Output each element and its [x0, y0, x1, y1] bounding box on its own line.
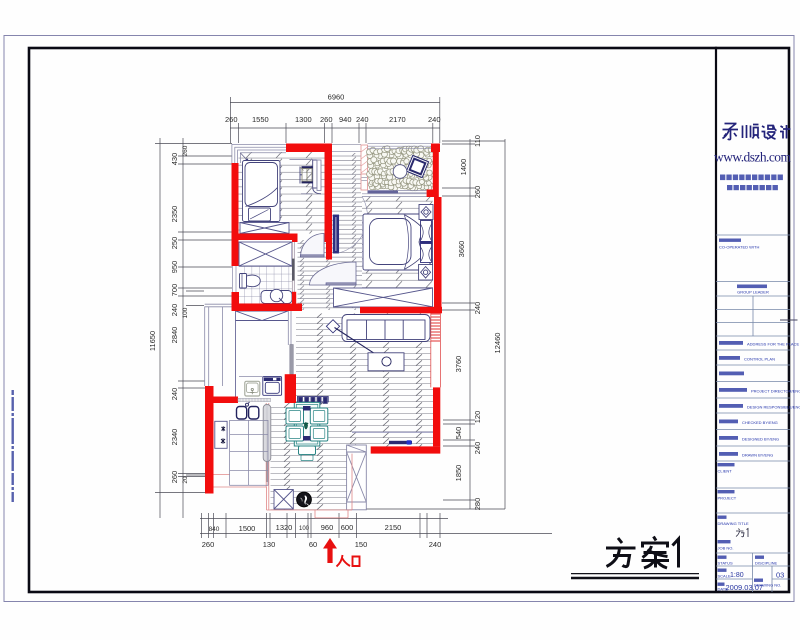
svg-text:100: 100 — [182, 307, 189, 318]
svg-text:ADDRESS FOR THE PLACE: ADDRESS FOR THE PLACE — [747, 342, 799, 347]
svg-text:SCALE: SCALE — [718, 574, 731, 579]
svg-text:240: 240 — [473, 302, 482, 315]
svg-text:240: 240 — [428, 115, 441, 124]
svg-text:DESIGNED BY/ENG: DESIGNED BY/ENG — [742, 437, 779, 442]
svg-text:3760: 3760 — [454, 356, 463, 373]
svg-text:250: 250 — [170, 237, 179, 250]
svg-text:150: 150 — [355, 540, 368, 549]
svg-text:840: 840 — [209, 526, 220, 533]
svg-text:130: 130 — [263, 540, 276, 549]
svg-text:2340: 2340 — [170, 429, 179, 446]
svg-text:540: 540 — [454, 427, 463, 440]
svg-text:CONTROL PLAN: CONTROL PLAN — [744, 357, 775, 362]
svg-text:940: 940 — [339, 115, 352, 124]
svg-text:110: 110 — [473, 135, 482, 147]
svg-text:280: 280 — [473, 498, 482, 511]
svg-text:2350: 2350 — [170, 206, 179, 223]
svg-text:240: 240 — [170, 388, 179, 401]
svg-text:20: 20 — [182, 476, 189, 484]
svg-text:240: 240 — [429, 540, 442, 549]
svg-text:3660: 3660 — [457, 241, 466, 258]
svg-text:DRAWING TITLE: DRAWING TITLE — [718, 521, 749, 526]
svg-text:CO-OPERATED WITH: CO-OPERATED WITH — [719, 245, 759, 250]
svg-text:DISCIPLINE: DISCIPLINE — [755, 561, 778, 566]
svg-text:2840: 2840 — [170, 327, 179, 344]
svg-text:PROJECT: PROJECT — [718, 496, 737, 501]
svg-text:2170: 2170 — [389, 115, 406, 124]
svg-text:260: 260 — [182, 145, 189, 156]
svg-text:1400: 1400 — [459, 159, 468, 176]
svg-text:11650: 11650 — [148, 331, 157, 351]
svg-text:1500: 1500 — [239, 524, 256, 533]
svg-text:100: 100 — [299, 526, 310, 532]
svg-text:2150: 2150 — [385, 523, 402, 532]
svg-text:260: 260 — [320, 115, 333, 124]
svg-text:240: 240 — [473, 442, 482, 455]
svg-text:1320: 1320 — [276, 523, 293, 532]
svg-text:260: 260 — [225, 115, 238, 124]
svg-text:www.dszh.com: www.dszh.com — [714, 150, 791, 165]
svg-text:CLIENT: CLIENT — [718, 469, 733, 474]
svg-text:430: 430 — [170, 153, 179, 166]
svg-text:600: 600 — [341, 523, 354, 532]
svg-text:260: 260 — [170, 471, 179, 484]
svg-text:120: 120 — [473, 411, 482, 424]
svg-text:03: 03 — [776, 571, 784, 580]
svg-text:1:80: 1:80 — [730, 572, 744, 579]
svg-text:260: 260 — [473, 186, 482, 199]
svg-text:PROJECT DIRECTOR/ENG: PROJECT DIRECTOR/ENG — [751, 389, 800, 394]
svg-text:6960: 6960 — [328, 93, 345, 102]
svg-text:JOB NO.: JOB NO. — [718, 546, 734, 551]
svg-text:700: 700 — [170, 284, 179, 297]
svg-text:DRAWN BY/ENG: DRAWN BY/ENG — [742, 453, 773, 458]
svg-text:1850: 1850 — [454, 465, 463, 482]
svg-text:60: 60 — [309, 540, 317, 549]
svg-text:1550: 1550 — [252, 115, 269, 124]
svg-text:DESIGN RESPONSIBLE/ENG: DESIGN RESPONSIBLE/ENG — [747, 405, 800, 410]
svg-text:STATUS: STATUS — [718, 561, 734, 566]
svg-text:2009.03.07: 2009.03.07 — [726, 583, 764, 592]
svg-text:240: 240 — [170, 304, 179, 317]
svg-text:12460: 12460 — [493, 333, 502, 354]
svg-text:960: 960 — [321, 523, 334, 532]
svg-text:CHECKED BY/ENG: CHECKED BY/ENG — [742, 420, 778, 425]
svg-text:950: 950 — [170, 261, 179, 274]
svg-text:260: 260 — [202, 540, 215, 549]
svg-text:GROUP LEADER: GROUP LEADER — [737, 290, 769, 295]
svg-text:240: 240 — [356, 115, 369, 124]
svg-text:1300: 1300 — [295, 115, 312, 124]
